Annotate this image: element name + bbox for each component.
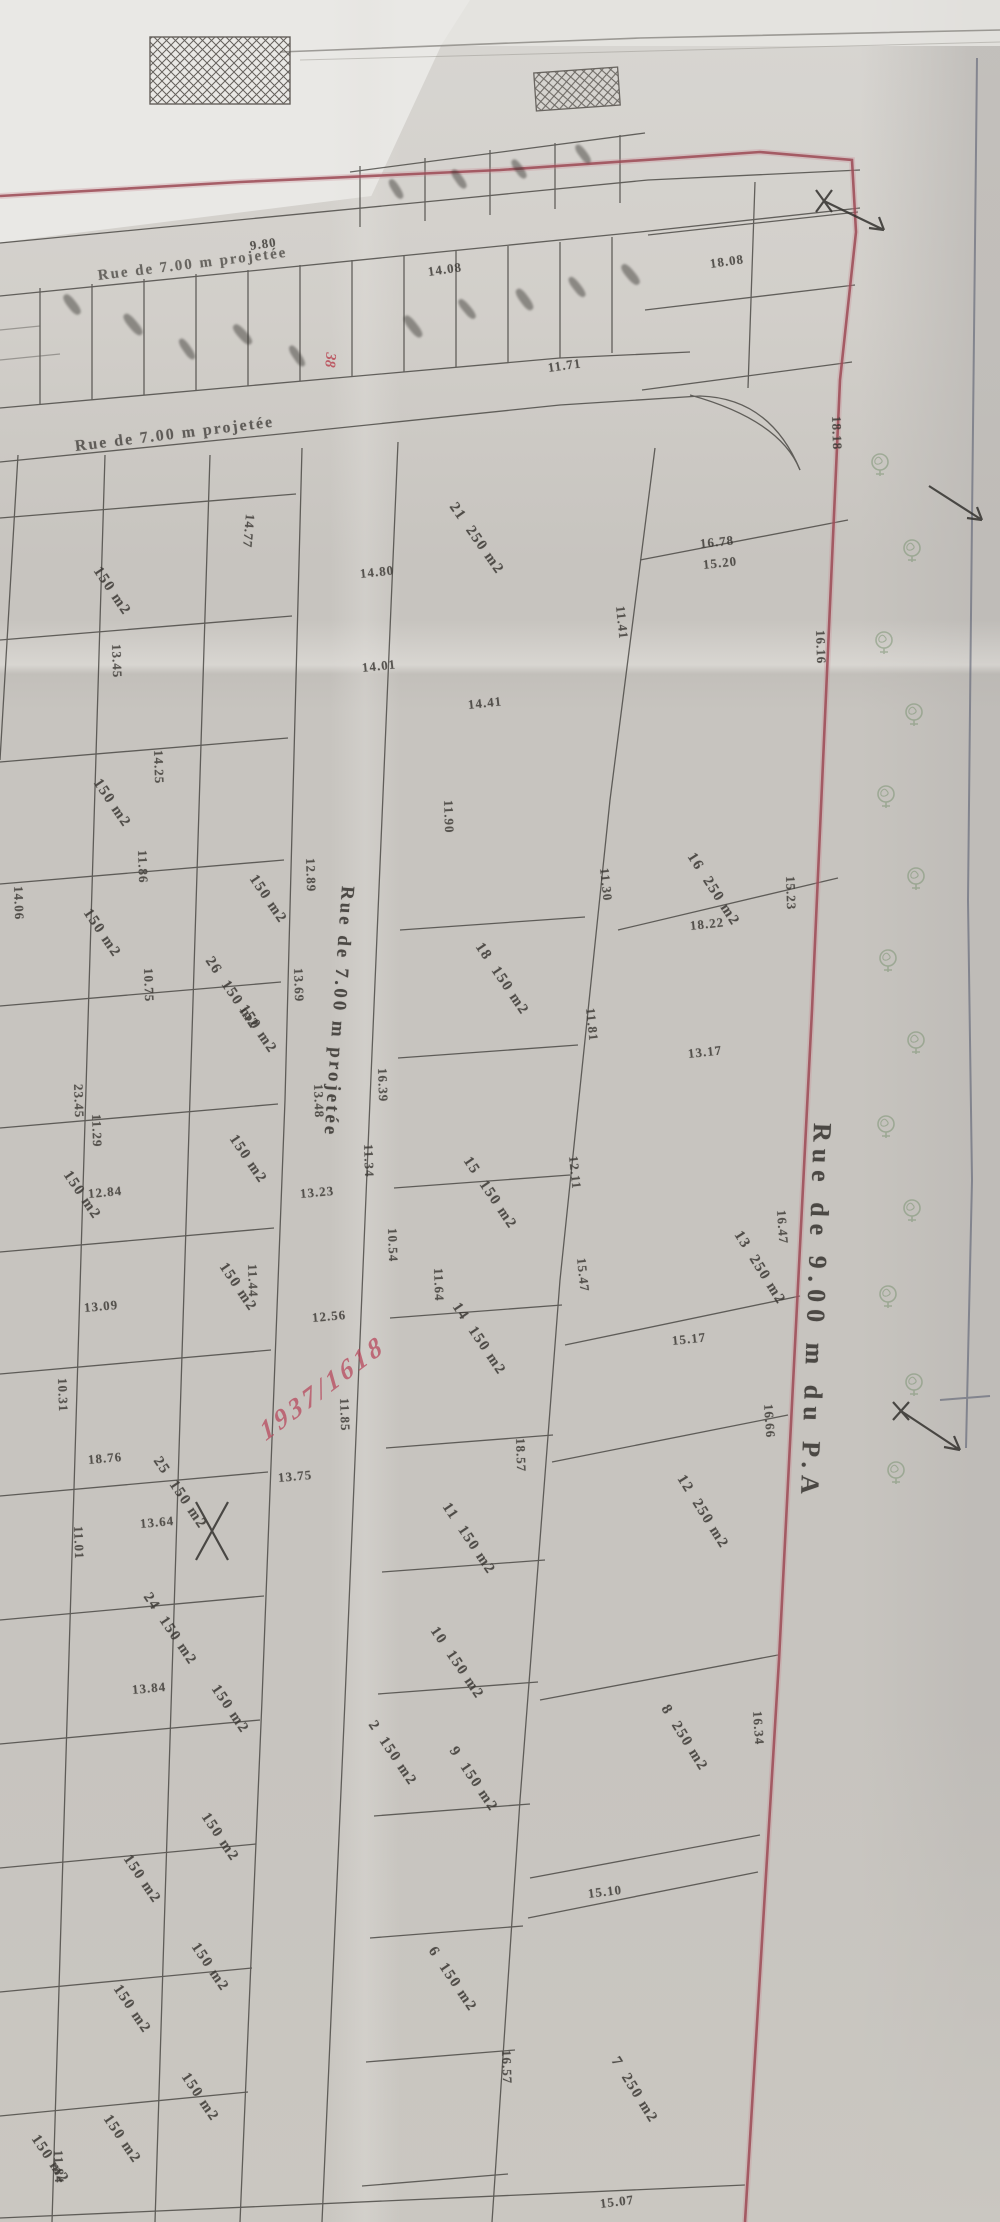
- dimension-label: 11.29: [88, 1114, 105, 1148]
- page-edge-line: [940, 58, 990, 1448]
- dimension-label: 13.23: [299, 1183, 335, 1202]
- tree-icon: [904, 540, 920, 562]
- dimension-label: 16.66: [760, 1403, 778, 1438]
- dimension-label: 18.76: [87, 1449, 123, 1468]
- dimension-label: 11.41: [612, 605, 631, 640]
- dimension-label: 12.56: [311, 1307, 347, 1326]
- dimension-label: 16.47: [773, 1209, 791, 1244]
- tree-icon: [880, 950, 896, 972]
- dimension-label: 15.47: [573, 1257, 592, 1293]
- dimension-label: 10.31: [54, 1378, 71, 1413]
- dimension-label: 13.84: [131, 1679, 167, 1698]
- dimension-label: 18.18: [828, 416, 845, 451]
- dimension-label: 14.06: [10, 886, 27, 921]
- dimension-label: 23.45: [70, 1084, 87, 1119]
- dimension-label: 11.34: [360, 1144, 377, 1178]
- dimension-label: 11.64: [430, 1268, 447, 1302]
- tree-icon: [908, 868, 924, 890]
- dimension-label: 11.86: [134, 850, 151, 884]
- dimension-label: 11.81: [582, 1007, 601, 1042]
- dimension-label: 15.23: [782, 876, 799, 911]
- red-street-line: [0, 152, 856, 2222]
- tree-icon: [878, 1116, 894, 1138]
- dimension-label: 10.75: [140, 968, 157, 1003]
- dimension-label: 16.34: [749, 1710, 767, 1745]
- tree-icon: [906, 704, 922, 726]
- dimension-label: 14.25: [150, 750, 167, 785]
- dimension-label: 11.85: [336, 1398, 353, 1432]
- dimension-label: 13.45: [108, 644, 125, 679]
- dimension-label: 16.16: [812, 630, 829, 665]
- tree-icon: [904, 1200, 920, 1222]
- dimension-label: 11.30: [596, 867, 615, 902]
- dimension-label: 13.09: [83, 1297, 119, 1316]
- map-photo: Rue de 9.00 m du P.A Rue de 7.00 m proje…: [0, 0, 1000, 2222]
- tree-icon: [888, 1462, 904, 1484]
- dimension-label: 11.90: [440, 800, 457, 834]
- tree-icon: [908, 1032, 924, 1054]
- tree-icon: [872, 454, 888, 476]
- dimension-label: 13.48: [310, 1084, 327, 1119]
- dimension-label: 10.54: [384, 1228, 401, 1263]
- dimension-label: 18.57: [512, 1438, 529, 1473]
- dimension-label: 16.57: [498, 2050, 515, 2085]
- dimension-label: 14.77: [239, 513, 258, 549]
- dimension-label: 16.39: [374, 1068, 391, 1103]
- dimension-label: 12.89: [302, 858, 319, 893]
- tree-icon: [878, 786, 894, 808]
- dimension-label: 11.01: [70, 1526, 87, 1560]
- tree-icon: [906, 1374, 922, 1396]
- dimension-label: 13.64: [139, 1513, 175, 1532]
- red-parcel-number: 38: [320, 352, 338, 368]
- tree-icon: [876, 632, 892, 654]
- tree-icon: [880, 1286, 896, 1308]
- tree-row: [872, 454, 924, 1484]
- dimension-label: 13.69: [290, 968, 307, 1003]
- dimension-label: 12.11: [565, 1155, 584, 1190]
- dimension-label: 13.75: [277, 1467, 313, 1486]
